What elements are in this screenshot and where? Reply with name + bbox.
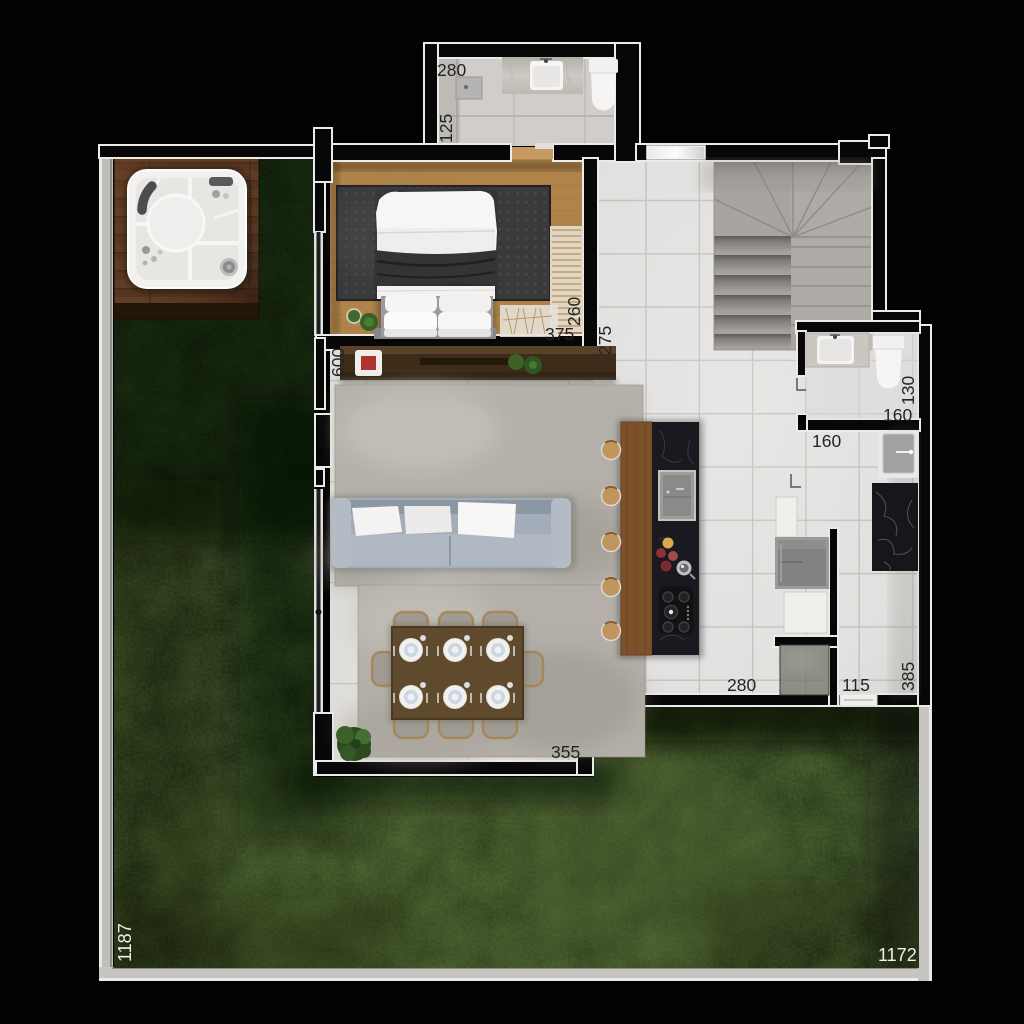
svg-text:355: 355 (551, 742, 580, 762)
svg-text:600: 600 (328, 348, 348, 377)
svg-text:130: 130 (898, 376, 918, 405)
svg-text:275: 275 (595, 326, 615, 355)
svg-text:260: 260 (564, 297, 584, 326)
svg-text:280: 280 (727, 675, 756, 695)
svg-text:160: 160 (883, 405, 912, 425)
svg-text:1187: 1187 (115, 923, 135, 962)
svg-text:125: 125 (436, 114, 456, 143)
svg-text:375: 375 (545, 324, 574, 344)
svg-text:1172: 1172 (878, 945, 917, 965)
svg-text:160: 160 (812, 431, 841, 451)
svg-text:280: 280 (437, 60, 466, 80)
svg-text:385: 385 (898, 662, 918, 691)
svg-text:115: 115 (842, 675, 870, 695)
